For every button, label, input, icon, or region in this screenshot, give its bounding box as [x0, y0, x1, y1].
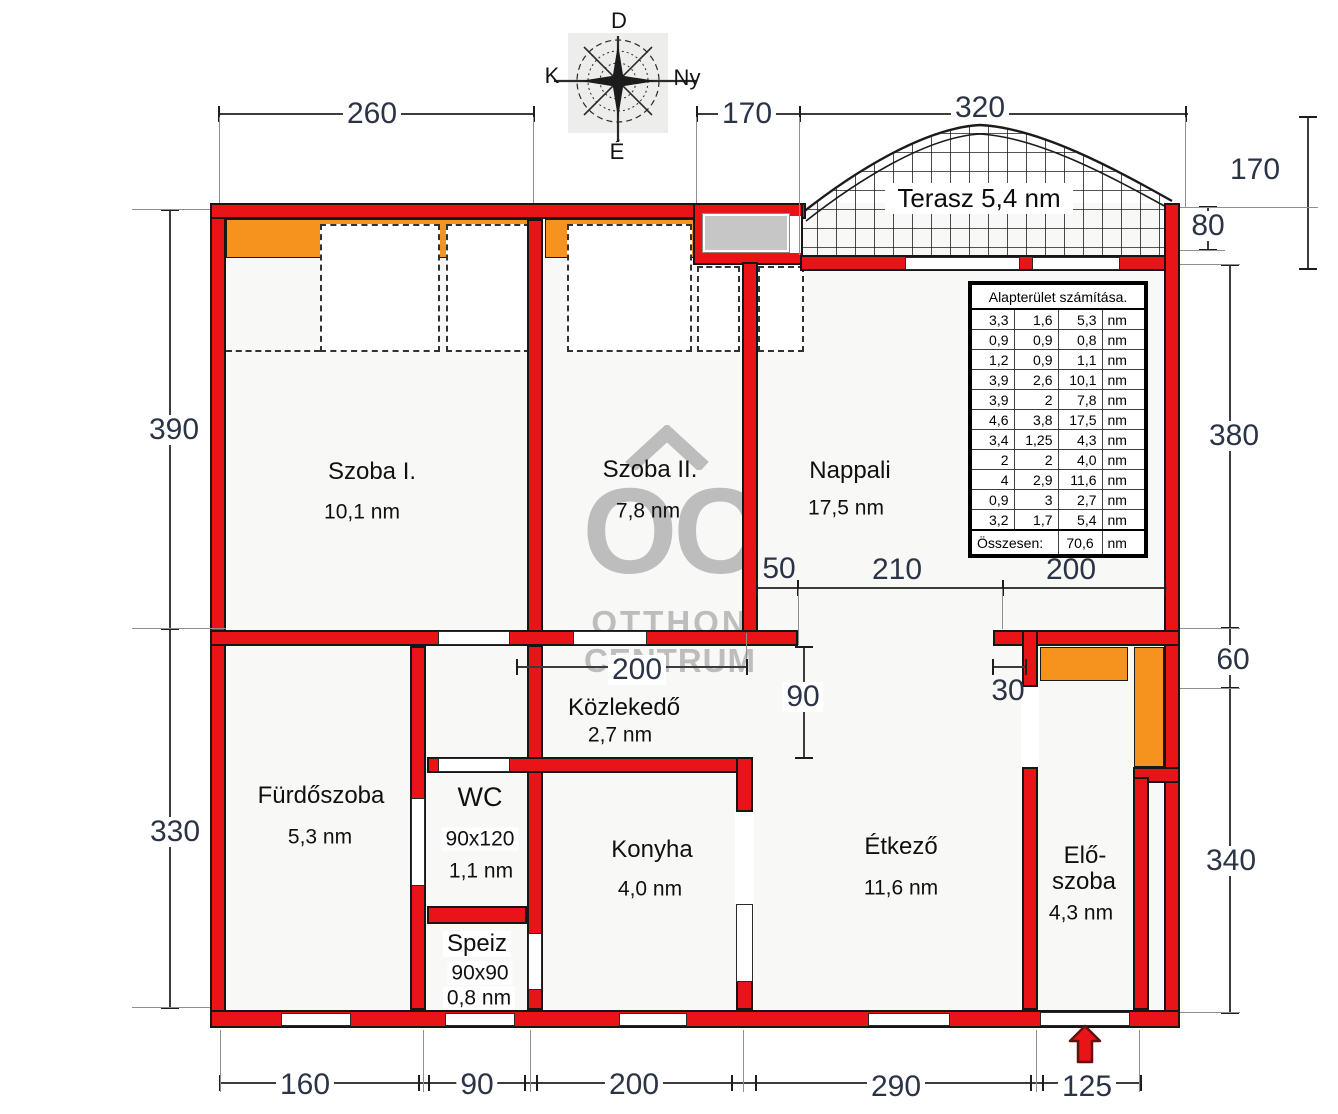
dim-tick: [524, 1075, 526, 1091]
terrace-label: Terasz 5,4 nm: [885, 183, 1073, 214]
area-table-unit-cell: nm: [1102, 490, 1146, 510]
area-table-cell: 2,7: [1058, 490, 1102, 510]
wall-right: [1164, 203, 1180, 1028]
area-table-cell: 4,0: [1058, 450, 1102, 470]
dim-tick: [428, 1075, 430, 1091]
extension-line: [1180, 688, 1240, 689]
area-table-row: 3,41,254,3nm: [970, 430, 1146, 450]
area-table-unit-cell: nm: [1102, 410, 1146, 430]
area-table-cell: 2: [1014, 450, 1058, 470]
floor-plan: OC OTTHON CENTRUM: [0, 0, 1338, 1114]
area-table-unit-cell: nm: [1102, 430, 1146, 450]
furniture-outline: [446, 224, 530, 352]
area-table-row: 3,21,75,4nm: [970, 510, 1146, 531]
area-table-cell: 0,9: [970, 490, 1014, 510]
area-table-cell: 3,4: [970, 430, 1014, 450]
dim-tick: [795, 646, 813, 648]
extension-line: [132, 628, 226, 629]
wall-szoba2-nappali: [742, 262, 758, 633]
window-speiz: [445, 1013, 515, 1026]
area-table-title: Alapterület számítása.: [970, 283, 1146, 309]
room-label-wc: WC: [458, 783, 503, 813]
area-table-cell: 10,1: [1058, 370, 1102, 390]
passage-konyha-etkezo: [735, 812, 754, 904]
area-table-cell: 3,3: [970, 309, 1014, 330]
area-table-unit-cell: nm: [1102, 350, 1146, 370]
dim-tick: [746, 659, 748, 675]
area-table-cell: 3,9: [970, 370, 1014, 390]
room-size-speiz: 90x90: [447, 961, 512, 984]
area-table-row: 42,911,6nm: [970, 470, 1146, 490]
window-nook-terrace: [1032, 257, 1120, 270]
extension-line: [1036, 1030, 1037, 1092]
area-table-cell: 3,9: [970, 390, 1014, 410]
area-table-cell: 5,4: [1058, 510, 1102, 531]
dim-label-bottom-290: 290: [867, 1072, 925, 1102]
extension-line: [533, 117, 534, 203]
area-table-row: 4,63,817,5nm: [970, 410, 1146, 430]
wardrobe-entry-horizontal: [1040, 647, 1128, 681]
area-table-unit-cell: nm: [1102, 470, 1146, 490]
dim-label-inner-50: 50: [762, 554, 795, 584]
terrace-label-text: Terasz 5,4 nm: [897, 183, 1060, 214]
area-table-total-label: Összesen:: [970, 530, 1058, 556]
room-label-szoba2: Szoba II.: [603, 457, 698, 483]
area-table-cell: 7,8: [1058, 390, 1102, 410]
area-table-cell: 4,6: [970, 410, 1014, 430]
dim-line: [993, 666, 1026, 668]
dim-label-top-320: 320: [951, 93, 1009, 123]
wall-konyha-etkezo-a: [736, 757, 753, 812]
room-label-etkezo: Étkező: [864, 834, 937, 860]
door-konyha: [736, 904, 753, 982]
area-table-cell: 0,8: [1058, 330, 1102, 350]
room-area-eloszoba: 4,3 nm: [1049, 901, 1113, 924]
extension-line: [1180, 250, 1225, 251]
dim-label-inner-200-hall: 200: [608, 655, 666, 685]
wall-szoba1-szoba2: [527, 219, 543, 632]
room-area-nappali: 17,5 nm: [808, 496, 884, 519]
dim-tick: [755, 1075, 757, 1091]
door-speiz: [528, 933, 542, 990]
area-table-cell: 4,3: [1058, 430, 1102, 450]
dim-label-bottom-90: 90: [456, 1070, 497, 1100]
window-konyha: [619, 1013, 687, 1026]
dim-label-right-340: 340: [1202, 846, 1260, 876]
extension-line: [220, 1030, 221, 1092]
furniture-outline: [758, 266, 804, 352]
room-area-wc: 1,1 nm: [449, 859, 513, 882]
area-table-row: 0,932,7nm: [970, 490, 1146, 510]
room-label-nappali: Nappali: [809, 458, 890, 484]
wall-bottom: [210, 1010, 1180, 1028]
dim-tick: [536, 1075, 538, 1091]
dim-tick: [795, 757, 813, 759]
area-table-unit-cell: nm: [1102, 370, 1146, 390]
door-wc: [438, 758, 510, 772]
dim-tick: [756, 580, 758, 596]
area-table-row: 1,20,91,1nm: [970, 350, 1146, 370]
compass-label-e: É: [610, 139, 625, 165]
area-table-cell: 0,9: [970, 330, 1014, 350]
window-nappali-terrace: [905, 257, 1020, 270]
extension-line: [1185, 117, 1186, 207]
area-table: Alapterület számítása. 3,31,65,3nm0,90,9…: [968, 281, 1148, 558]
extension-line: [132, 1007, 210, 1008]
wall-eloszoba-east: [1133, 777, 1149, 1010]
dim-label-top-170: 170: [718, 99, 776, 129]
dim-tick: [1042, 1075, 1044, 1091]
wall-wc-speiz: [427, 906, 527, 924]
dim-line: [219, 1082, 1142, 1084]
area-table-cell: 3: [1014, 490, 1058, 510]
room-label-szoba1: Szoba I.: [328, 459, 416, 485]
extension-line: [743, 1030, 744, 1092]
dim-label-inner-200-right: 200: [1046, 555, 1096, 585]
extension-line: [799, 117, 800, 255]
dim-line: [757, 587, 1167, 589]
dim-label-bottom-200: 200: [605, 1070, 663, 1100]
dim-label-left-330: 330: [146, 817, 204, 847]
dim-tick: [1025, 659, 1027, 675]
entrance-arrow-icon: [1062, 1020, 1110, 1070]
dim-tick: [992, 659, 994, 675]
area-table-unit-cell: nm: [1102, 309, 1146, 330]
room-label-eloszoba-2: szoba: [1052, 869, 1116, 895]
area-table-total-unit: nm: [1102, 530, 1146, 556]
extension-line: [1180, 207, 1318, 208]
extension-line: [1180, 1012, 1240, 1013]
room-label-konyha: Konyha: [611, 837, 692, 863]
furniture-dashed-line: [226, 350, 320, 352]
room-area-szoba1: 10,1 nm: [324, 500, 400, 523]
dim-tick: [1030, 1075, 1032, 1091]
dim-label-right-80: 80: [1187, 211, 1228, 241]
dim-label-top-260: 260: [343, 99, 401, 129]
dim-tick: [731, 1075, 733, 1091]
dim-tick: [1140, 1075, 1142, 1091]
dim-label-bottom-160: 160: [276, 1070, 334, 1100]
extension-line: [423, 1030, 424, 1092]
door-szoba2: [573, 631, 647, 645]
dim-label-right-380: 380: [1205, 421, 1263, 451]
area-table-unit-cell: nm: [1102, 330, 1146, 350]
area-table-total-value: 70,6: [1058, 530, 1102, 556]
extension-line: [219, 117, 220, 203]
area-table-cell: 5,3: [1058, 309, 1102, 330]
area-table-row: 224,0nm: [970, 450, 1146, 470]
watermark-logo: OC: [583, 470, 758, 592]
dim-label-inner-30: 30: [991, 676, 1024, 706]
extension-line: [132, 209, 210, 210]
dim-label-bottom-125: 125: [1058, 1072, 1116, 1102]
area-table-row: 3,92,610,1nm: [970, 370, 1146, 390]
area-table-cell: 17,5: [1058, 410, 1102, 430]
bay-window-glass: [703, 214, 789, 252]
area-table-cell: 2,9: [1014, 470, 1058, 490]
furniture-outline: [697, 266, 740, 352]
area-table-cell: 1,7: [1014, 510, 1058, 531]
door-szoba1: [438, 631, 510, 645]
furniture-outline: [567, 224, 692, 352]
extension-line: [1139, 1030, 1140, 1092]
window-etkezo: [868, 1013, 950, 1026]
area-table-cell: 2: [1014, 390, 1058, 410]
area-table-row: 0,90,90,8nm: [970, 330, 1146, 350]
room-area-furdoszoba: 5,3 nm: [288, 825, 352, 848]
room-label-furdoszoba: Fürdőszoba: [258, 783, 385, 809]
compass-label-ny: Ny: [674, 65, 701, 91]
area-table-cell: 2: [970, 450, 1014, 470]
wall-etkezo-eloszoba-b: [1022, 767, 1038, 1010]
extension-line: [530, 1030, 531, 1092]
area-table-cell: 0,9: [1014, 330, 1058, 350]
room-area-etkezo: 11,6 nm: [864, 876, 938, 899]
area-table-cell: 2,6: [1014, 370, 1058, 390]
door-furdoszoba: [411, 798, 425, 886]
dim-label-inner-90: 90: [782, 682, 823, 712]
compass-label-d: D: [611, 8, 627, 34]
extension-line: [1180, 264, 1240, 265]
dim-label-right-60: 60: [1212, 645, 1253, 675]
window-furdoszoba: [281, 1013, 351, 1026]
dim-tick: [418, 1075, 420, 1091]
furniture-outline: [320, 224, 440, 352]
extension-line: [1002, 589, 1003, 629]
area-table-cell: 3,2: [970, 510, 1014, 531]
room-label-speiz: Speiz: [443, 931, 511, 957]
area-table-unit-cell: nm: [1102, 450, 1146, 470]
wall-left: [210, 203, 226, 1028]
area-table-cell: 4: [970, 470, 1014, 490]
extension-line: [1180, 628, 1240, 629]
area-table-cell: 1,25: [1014, 430, 1058, 450]
room-label-eloszoba-1: Elő-: [1064, 843, 1107, 869]
dim-line: [1307, 117, 1309, 269]
area-table-row: 3,927,8nm: [970, 390, 1146, 410]
dim-tick: [1164, 580, 1166, 596]
room-area-szoba2: 7,8 nm: [616, 499, 680, 522]
extension-line: [746, 633, 747, 659]
area-table-unit-cell: nm: [1102, 510, 1146, 531]
area-table-cell: 1,2: [970, 350, 1014, 370]
dim-tick: [1299, 268, 1317, 270]
area-table-cell: 11,6: [1058, 470, 1102, 490]
area-table-cell: 1,6: [1014, 309, 1058, 330]
room-area-konyha: 4,0 nm: [618, 877, 682, 900]
room-area-kozlekedo: 2,7 nm: [588, 723, 652, 746]
compass-label-k: K: [545, 63, 560, 89]
dim-label-left-390: 390: [145, 415, 203, 445]
dim-tick: [516, 659, 518, 675]
room-area-speiz: 0,8 nm: [443, 986, 515, 1009]
dim-tick: [1299, 116, 1317, 118]
dim-label-right-170: 170: [1230, 155, 1280, 185]
room-label-kozlekedo: Közlekedő: [568, 695, 680, 721]
wardrobe-entry-vertical: [1134, 647, 1164, 767]
room-size-wc: 90x120: [442, 827, 519, 850]
dim-label-inner-210: 210: [872, 555, 922, 585]
area-table-cell: 3,8: [1014, 410, 1058, 430]
area-table-unit-cell: nm: [1102, 390, 1146, 410]
wall-konyha-etkezo-b: [736, 980, 753, 1010]
extension-line: [798, 589, 799, 645]
area-table-cell: 0,9: [1014, 350, 1058, 370]
area-table-row: 3,31,65,3nm: [970, 309, 1146, 330]
area-table-cell: 1,1: [1058, 350, 1102, 370]
